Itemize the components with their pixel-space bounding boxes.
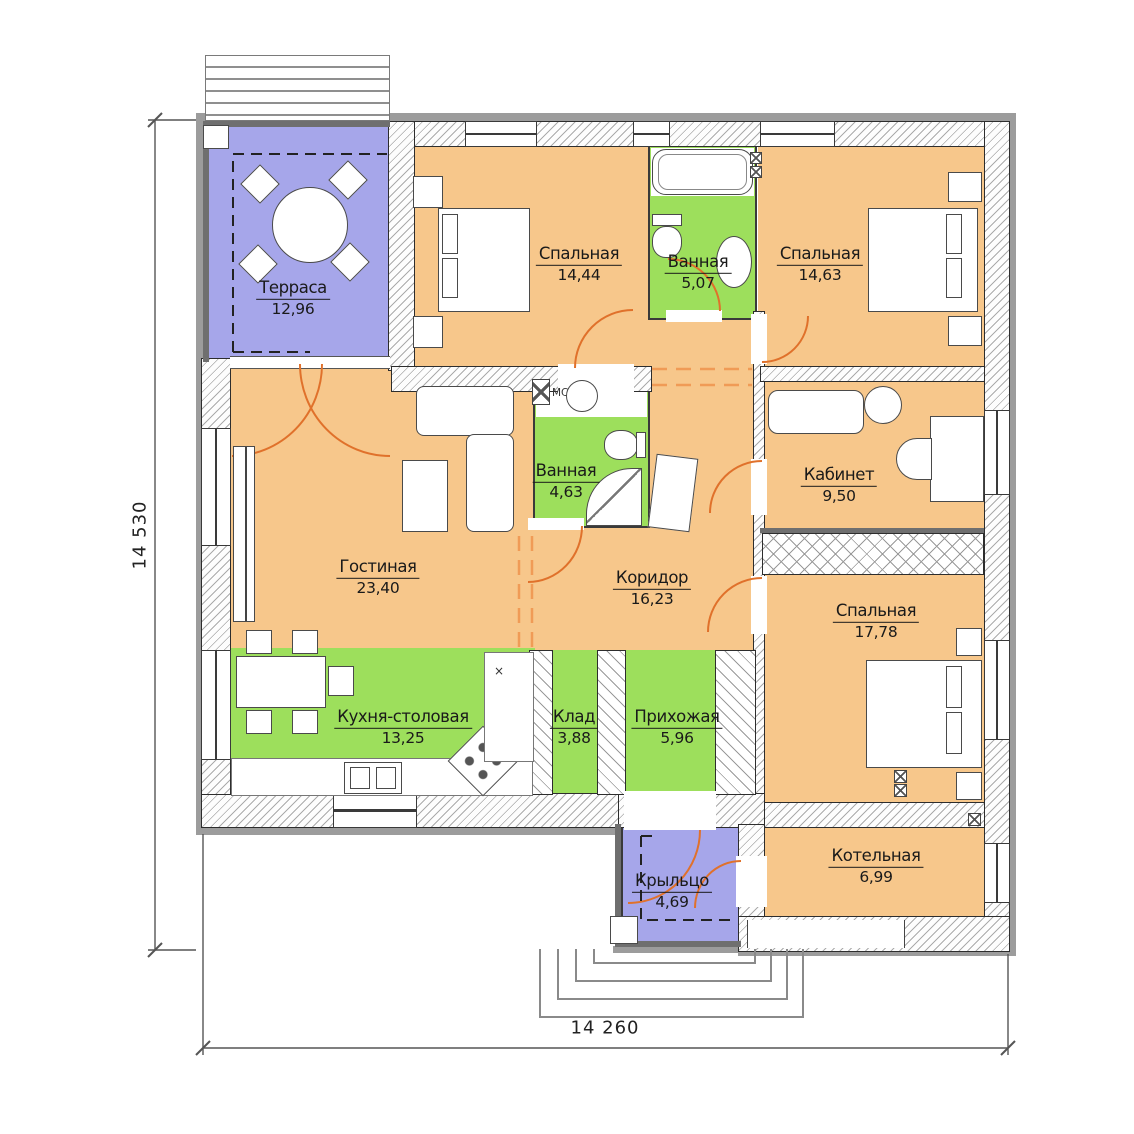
- room-name: Терраса: [256, 278, 330, 300]
- pillow: [442, 258, 458, 298]
- door-arc-bathroom2: [528, 526, 582, 582]
- counter-mark: ×: [494, 664, 504, 678]
- door-arc-bedroom1: [575, 310, 633, 368]
- room-area: 9,50: [801, 487, 877, 506]
- room-label-bedroom-2: Спальная 14,63: [777, 244, 863, 284]
- dining-table: [236, 656, 326, 708]
- hall-cabinet: [648, 454, 699, 533]
- window-bedroom2-top: [760, 121, 835, 147]
- room-area: 14,44: [536, 266, 622, 285]
- pillow: [946, 712, 962, 754]
- room-name: Коридор: [613, 568, 691, 590]
- tv-stand: [233, 446, 255, 622]
- dining-chair: [292, 630, 318, 654]
- dining-chair: [246, 630, 272, 654]
- door-arc-study: [710, 461, 762, 513]
- room-name: Ванная: [665, 252, 732, 274]
- dimension-height: 14 530: [130, 501, 151, 570]
- room-label-bathroom-1: Ванная 5,07: [665, 252, 732, 292]
- entry-steps: [540, 949, 803, 1017]
- dimension-width: 14 260: [571, 1018, 640, 1039]
- door-arc-bedroom2: [762, 316, 808, 362]
- toilet: [652, 214, 682, 226]
- room-label-kitchen: Кухня-столовая 13,25: [334, 707, 472, 747]
- room-area: 12,96: [256, 300, 330, 319]
- window-bedroom3-right: [984, 640, 1010, 740]
- room-name: Котельная: [828, 846, 923, 868]
- room-area: 23,40: [336, 579, 419, 598]
- nightstand: [956, 772, 982, 800]
- room-area: 3,88: [550, 729, 598, 748]
- sink-basin: [350, 767, 370, 789]
- vent-shaft: [894, 784, 907, 797]
- porch-post: [610, 916, 638, 944]
- sofa-section: [466, 434, 514, 532]
- dining-chair: [246, 710, 272, 734]
- dining-chair: [292, 710, 318, 734]
- bed: [866, 660, 982, 768]
- window-kitchen-bottom: [333, 793, 417, 828]
- bathroom2-sink: [566, 380, 598, 412]
- window-bathroom1-top: [633, 121, 670, 147]
- pillow: [946, 258, 962, 298]
- nightstand: [948, 172, 982, 202]
- room-name: Гостиная: [336, 557, 419, 579]
- pillow: [946, 214, 962, 254]
- kitchen-counter-column: [484, 652, 534, 762]
- window-living-left: [201, 428, 231, 546]
- dining-chair: [328, 666, 354, 696]
- room-area: 16,23: [613, 590, 691, 609]
- room-area: 14,63: [777, 266, 863, 285]
- nightstand: [413, 316, 443, 348]
- room-name: Спальная: [777, 244, 863, 266]
- annotations-layer: [0, 0, 1134, 1134]
- bathtub-inner: [658, 154, 747, 190]
- room-area: 5,96: [631, 729, 722, 748]
- room-name: Кабинет: [801, 465, 877, 487]
- window-kitchen-left: [201, 650, 231, 760]
- door-arc-french-left: [232, 364, 322, 456]
- floor-plan-canvas: × МС: [0, 0, 1134, 1134]
- study-round-table: [864, 386, 902, 424]
- vent-shaft: [750, 166, 762, 178]
- room-label-boiler: Котельная 6,99: [828, 846, 923, 886]
- nightstand: [948, 316, 982, 346]
- room-name: Спальная: [833, 601, 919, 623]
- room-label-porch: Крыльцо 4,69: [632, 871, 712, 911]
- room-label-bedroom-1: Спальная 14,44: [536, 244, 622, 284]
- room-label-storage: Клад 3,88: [550, 707, 598, 747]
- room-name: Кухня-столовая: [334, 707, 472, 729]
- room-area: 17,78: [833, 623, 919, 642]
- room-area: 6,99: [828, 868, 923, 887]
- terrace-post: [203, 125, 229, 149]
- room-name: Клад: [550, 707, 598, 729]
- study-sofa: [768, 390, 864, 434]
- toilet-bowl: [604, 430, 638, 460]
- room-area: 5,07: [665, 274, 732, 293]
- window-boiler-right: [984, 843, 1010, 903]
- room-area: 4,69: [632, 893, 712, 912]
- vent-shaft: [750, 152, 762, 164]
- pillow: [946, 666, 962, 708]
- washing-machine: [532, 379, 550, 405]
- room-name: Прихожая: [631, 707, 722, 729]
- coffee-table: [402, 460, 448, 532]
- study-chair: [896, 438, 932, 480]
- room-label-living: Гостиная 23,40: [336, 557, 419, 597]
- room-area: 13,25: [334, 729, 472, 748]
- nightstand: [956, 628, 982, 656]
- nightstand: [413, 176, 443, 208]
- vent-shaft: [894, 770, 907, 783]
- room-area: 4,63: [533, 483, 600, 502]
- study-desk: [930, 416, 984, 502]
- door-arc-bedroom3: [708, 578, 762, 632]
- room-label-terrace: Терраса 12,96: [256, 278, 330, 318]
- sofa-section: [416, 386, 514, 436]
- room-name: Спальная: [536, 244, 622, 266]
- sink-basin: [376, 767, 396, 789]
- window-study-right: [984, 410, 1010, 495]
- room-label-bedroom-3: Спальная 17,78: [833, 601, 919, 641]
- room-label-hallway: Прихожая 5,96: [631, 707, 722, 747]
- room-name: Крыльцо: [632, 871, 712, 893]
- toilet-tank: [636, 432, 646, 458]
- room-name: Ванная: [533, 461, 600, 483]
- terrace-round-table: [272, 187, 348, 263]
- room-label-bathroom-2: Ванная 4,63: [533, 461, 600, 501]
- window-bedroom1-top: [465, 121, 537, 147]
- room-label-study: Кабинет 9,50: [801, 465, 877, 505]
- room-label-corridor: Коридор 16,23: [613, 568, 691, 608]
- pillow: [442, 214, 458, 254]
- vent-shaft: [968, 813, 981, 826]
- door-arcs: [232, 259, 808, 908]
- door-arc-french-right: [300, 364, 390, 456]
